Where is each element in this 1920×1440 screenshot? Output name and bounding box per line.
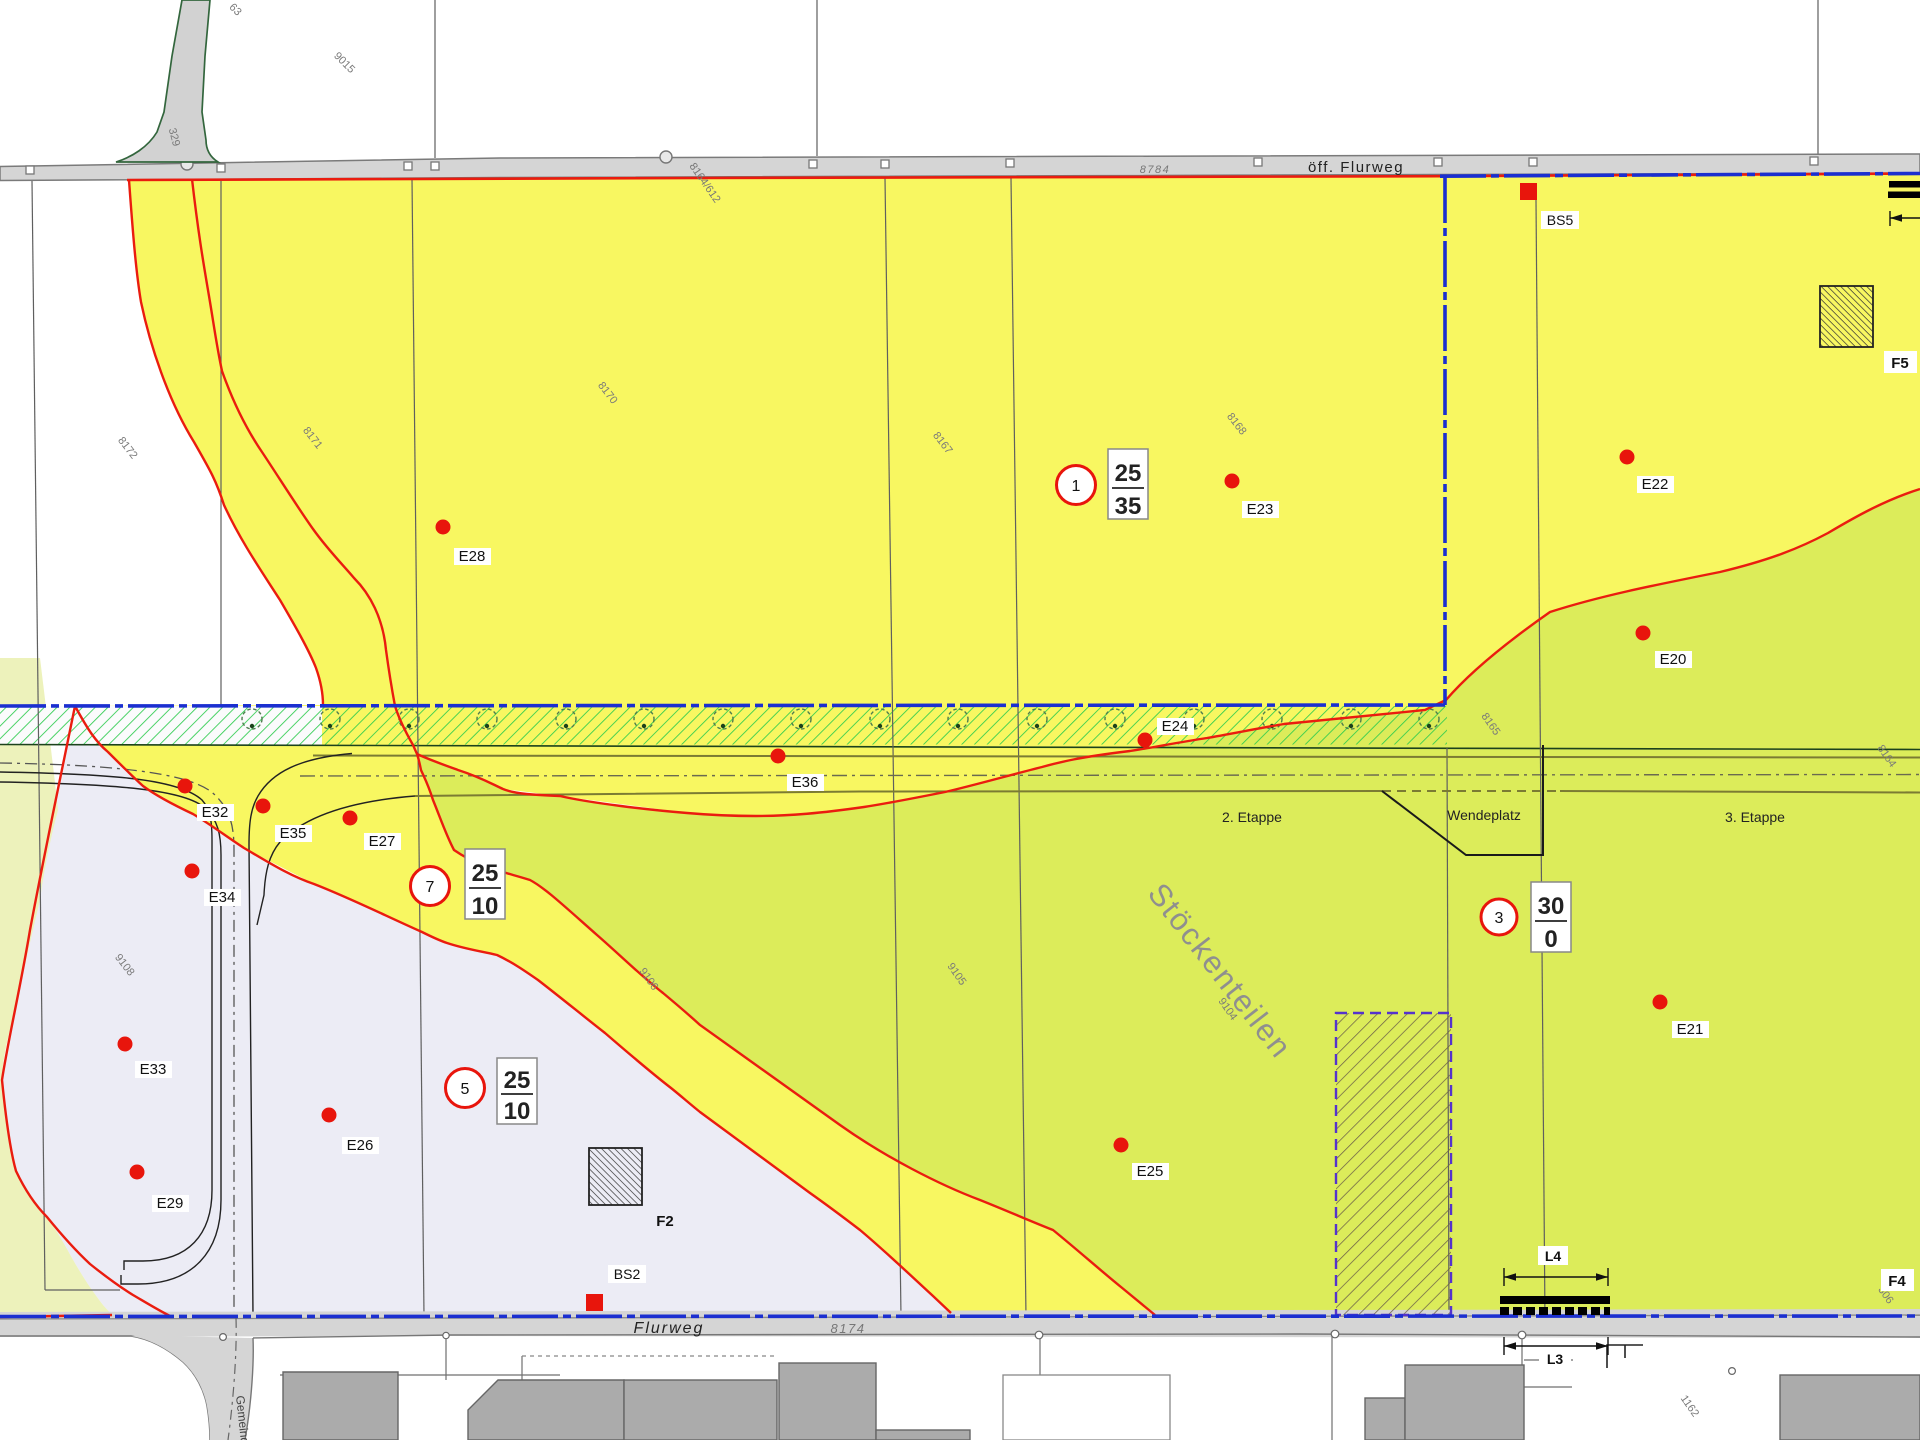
svg-text:E33: E33 xyxy=(140,1061,167,1078)
svg-text:Flurweg: Flurweg xyxy=(634,1320,705,1337)
svg-text:BS2: BS2 xyxy=(614,1266,641,1282)
svg-text:8174: 8174 xyxy=(831,1321,866,1336)
svg-text:3. Etappe: 3. Etappe xyxy=(1725,809,1785,825)
svg-text:E25: E25 xyxy=(1137,1163,1164,1180)
svg-text:E26: E26 xyxy=(347,1137,374,1154)
svg-text:5: 5 xyxy=(461,1081,470,1098)
svg-text:E22: E22 xyxy=(1642,476,1669,493)
svg-text:8784: 8784 xyxy=(1140,164,1170,176)
svg-text:L4: L4 xyxy=(1545,1248,1562,1264)
svg-text:F4: F4 xyxy=(1888,1273,1906,1290)
svg-text:E20: E20 xyxy=(1660,651,1687,668)
svg-text:3: 3 xyxy=(1495,910,1504,927)
svg-text:25: 25 xyxy=(1115,460,1142,487)
svg-text:E34: E34 xyxy=(209,889,236,906)
svg-text:10: 10 xyxy=(472,893,499,920)
svg-text:7: 7 xyxy=(426,879,435,896)
svg-text:öff. Flurweg: öff. Flurweg xyxy=(1308,159,1404,176)
svg-text:E28: E28 xyxy=(459,548,486,565)
svg-text:E29: E29 xyxy=(157,1195,184,1212)
svg-text:25: 25 xyxy=(504,1067,531,1094)
svg-text:E21: E21 xyxy=(1677,1021,1704,1038)
svg-text:Wendeplatz: Wendeplatz xyxy=(1447,807,1521,823)
svg-text:L3: L3 xyxy=(1547,1351,1564,1367)
svg-text:0: 0 xyxy=(1544,926,1557,953)
svg-text:E23: E23 xyxy=(1247,501,1274,518)
svg-text:E36: E36 xyxy=(792,774,819,791)
svg-text:30: 30 xyxy=(1538,893,1565,920)
svg-text:E35: E35 xyxy=(280,825,307,842)
svg-text:E24: E24 xyxy=(1162,718,1189,735)
svg-text:E27: E27 xyxy=(369,833,396,850)
svg-text:1: 1 xyxy=(1072,478,1081,495)
svg-text:F5: F5 xyxy=(1891,355,1909,372)
svg-text:F2: F2 xyxy=(656,1213,674,1230)
svg-text:BS5: BS5 xyxy=(1547,212,1574,228)
svg-text:10: 10 xyxy=(504,1098,531,1125)
svg-text:35: 35 xyxy=(1115,493,1142,520)
svg-text:25: 25 xyxy=(472,860,499,887)
svg-text:2. Etappe: 2. Etappe xyxy=(1222,809,1282,825)
svg-text:E32: E32 xyxy=(202,804,229,821)
